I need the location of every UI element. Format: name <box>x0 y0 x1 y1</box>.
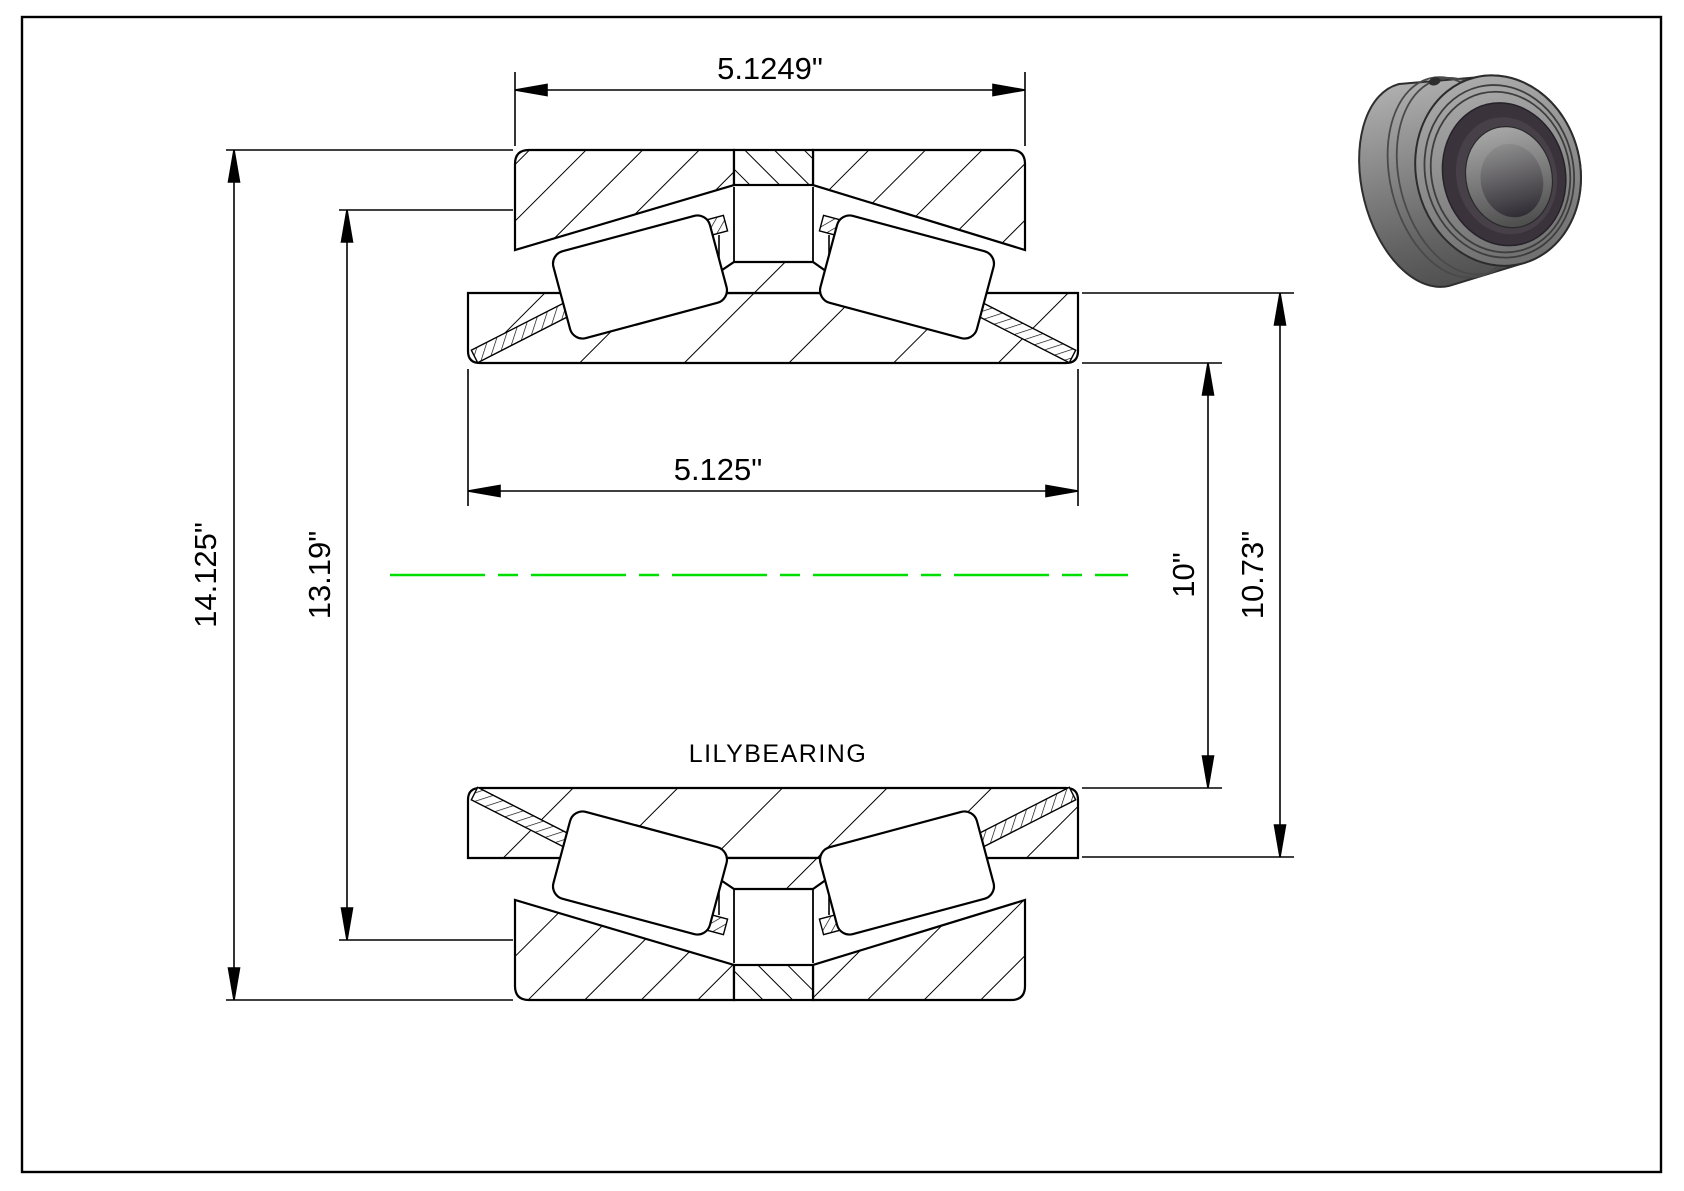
arrowhead <box>1203 756 1214 788</box>
cone-band-bottom <box>468 788 1078 858</box>
arrowhead <box>1275 293 1286 325</box>
arrowhead <box>993 85 1025 96</box>
brand-label: LILYBEARING <box>689 740 868 768</box>
arrowhead <box>342 210 353 242</box>
arrowhead <box>515 85 547 96</box>
cup-spacer-top <box>734 150 813 185</box>
cone-band-top <box>468 293 1078 363</box>
dim-label-cone-width: 5.125" <box>674 452 763 487</box>
arrowhead <box>1275 825 1286 857</box>
arrowhead <box>1203 363 1214 395</box>
arrowhead <box>342 908 353 940</box>
arrowhead <box>468 486 500 497</box>
bearing-drawing-svg: 5.1249" 5.125" 14.125" 13.19" 10" 10.73"… <box>0 0 1684 1191</box>
drawing-page: 5.1249" 5.125" 14.125" 13.19" 10" 10.73"… <box>0 0 1684 1191</box>
arrowhead <box>229 968 240 1000</box>
dim-label-bore-diameter: 10" <box>1166 552 1201 598</box>
dim-label-rib-diameter: 10.73" <box>1235 531 1270 620</box>
arrowhead <box>229 150 240 182</box>
dim-cone-width <box>468 369 1078 506</box>
dim-label-cup-face-diameter: 13.19" <box>302 531 337 620</box>
cup-spacer-bottom <box>734 965 813 1000</box>
dim-label-outer-diameter: 14.125" <box>188 522 223 628</box>
arrowhead <box>1046 486 1078 497</box>
bearing-3d-thumbnail <box>1339 46 1602 301</box>
dim-label-cup-width: 5.1249" <box>717 51 823 86</box>
